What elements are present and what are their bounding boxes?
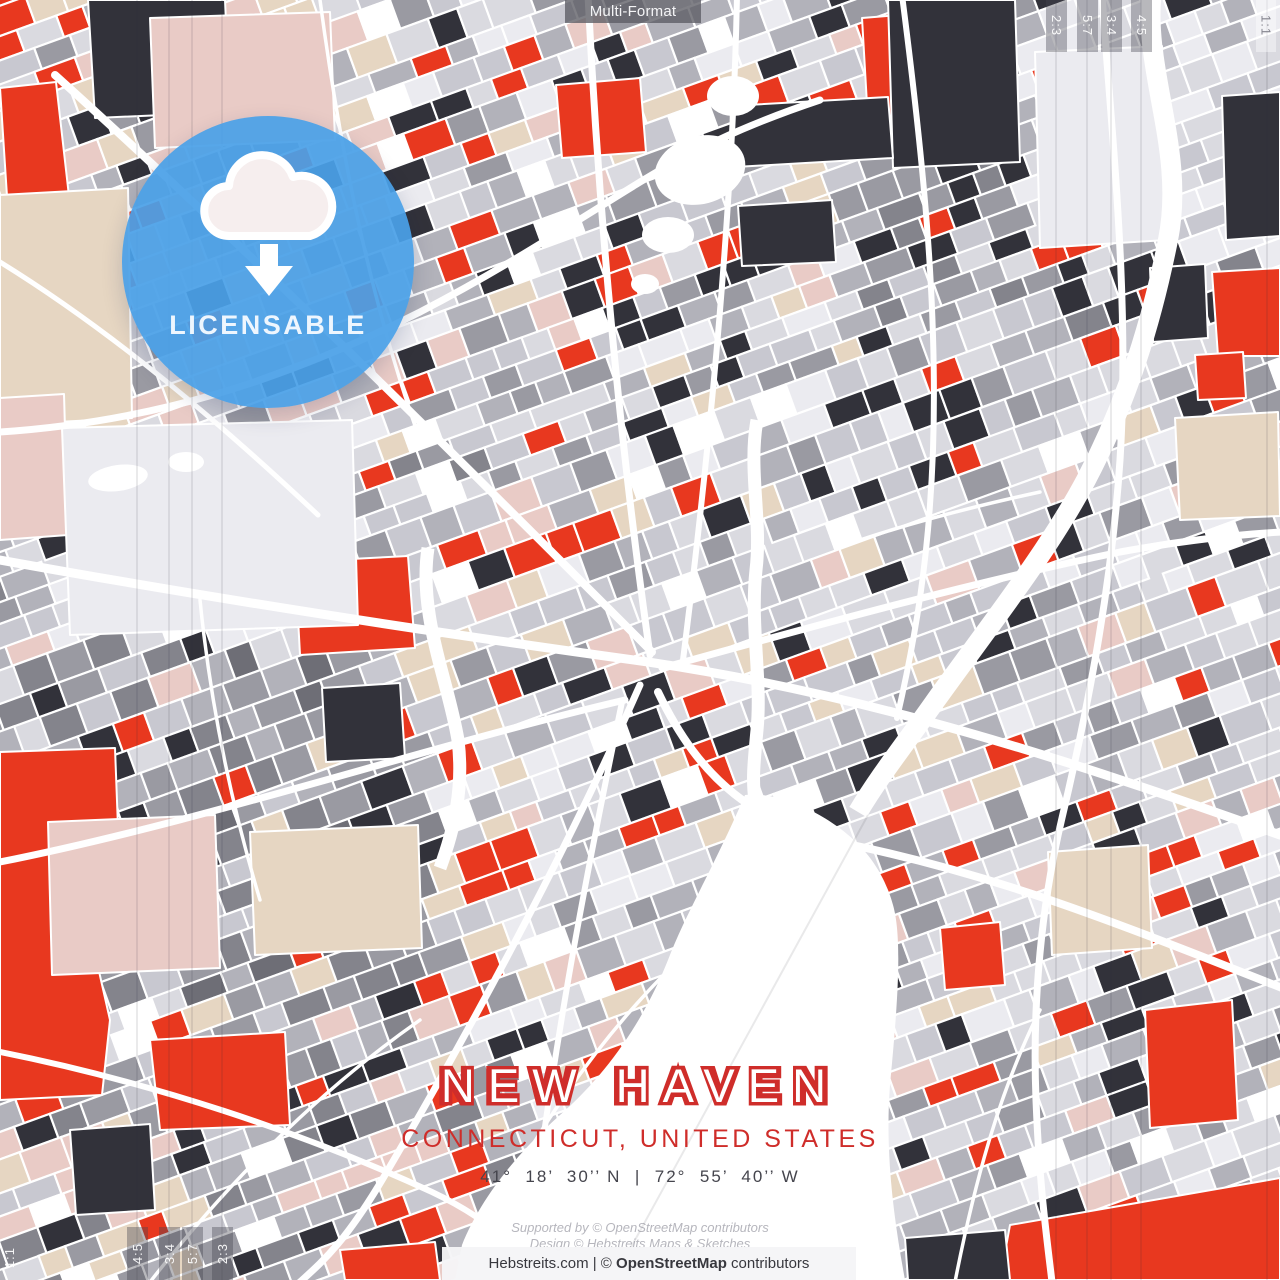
aspect-label: 5:7 — [1080, 15, 1095, 36]
watermark-line1: Supported by © OpenStreetMap contributor… — [0, 1220, 1280, 1235]
badge-label: LICENSABLE — [169, 310, 367, 341]
coordinates: 41° 18’ 30’’ N | 72° 55’ 40’’ W — [0, 1167, 1280, 1187]
licensable-badge: LICENSABLE — [122, 116, 414, 408]
aspect-label: 3:4 — [1104, 15, 1119, 36]
city-title: NEW HAVEN NEW HAVEN — [440, 1062, 841, 1109]
aspect-label: 4:5 — [1134, 15, 1149, 36]
crop-strip: 5:7 — [1077, 0, 1098, 52]
map-poster: 2:3 5:7 3:4 4:5 1:1 4:5 3:4 5:7 2:3 1:1 … — [0, 0, 1280, 1280]
attribution-right: contributors — [727, 1255, 810, 1272]
city-title-inline: NEW HAVEN — [440, 1062, 841, 1109]
title-block: NEW HAVEN NEW HAVEN CONNECTICUT, UNITED … — [0, 1062, 1280, 1187]
pond — [168, 452, 204, 472]
pond — [642, 217, 694, 253]
region-subtitle: CONNECTICUT, UNITED STATES — [0, 1125, 1280, 1154]
aspect-label: 1:1 — [1259, 15, 1274, 36]
cloud-download-icon — [182, 146, 354, 304]
pond — [631, 274, 659, 294]
crop-strip: 1:1 — [1256, 0, 1276, 52]
format-label: Multi-Format — [590, 3, 677, 20]
attribution-bar: Hebstreits.com | © OpenStreetMap contrib… — [442, 1247, 856, 1280]
format-bar: Multi-Format — [565, 0, 701, 23]
aspect-label: 2:3 — [1049, 15, 1064, 36]
attribution-left: Hebstreits.com | © — [489, 1255, 616, 1272]
attribution-text: Hebstreits.com | © OpenStreetMap contrib… — [489, 1255, 810, 1272]
mill-river — [754, 420, 759, 800]
crop-strip: 3:4 — [1101, 0, 1122, 52]
attribution-osm: OpenStreetMap — [616, 1255, 727, 1272]
crop-strip: 4:5 — [1131, 0, 1152, 52]
crop-strip: 2:3 — [1046, 0, 1067, 52]
